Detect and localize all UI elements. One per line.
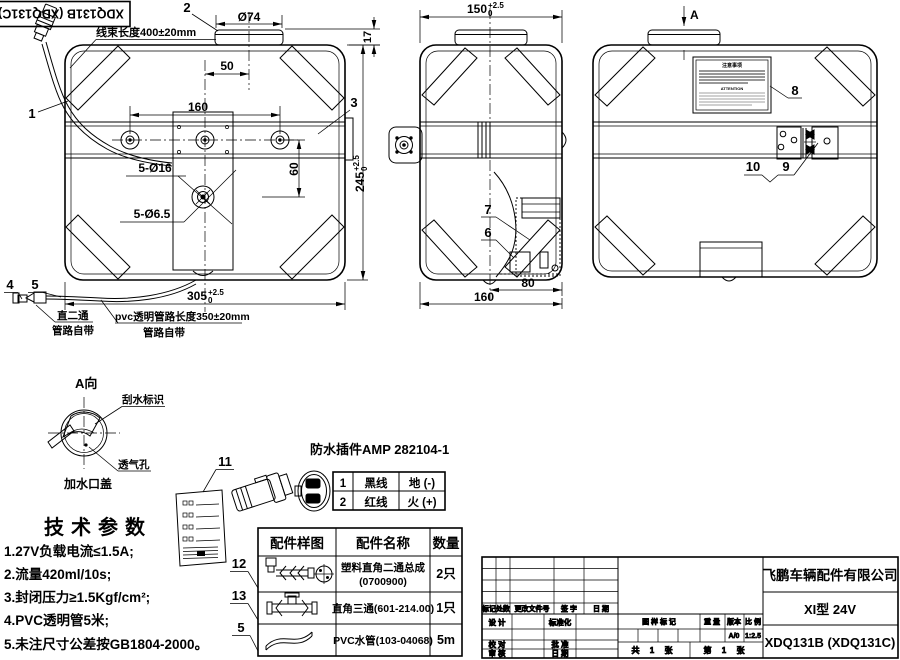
rear-corner-gussets bbox=[595, 47, 875, 275]
company-area: 飞鹏车辆配件有限公司 XI型 24V XDQ131B (XDQ131C) bbox=[763, 567, 899, 650]
roles-table: 设 计 标准化 校 对 批 准 审 核 日 期 bbox=[482, 614, 618, 658]
dim-text-hole-span: 160 bbox=[188, 100, 208, 114]
amp-connector-face: 1 2 bbox=[295, 471, 330, 511]
wire-row-no: 2 bbox=[340, 497, 346, 509]
wire-row-color: 黑线 bbox=[365, 476, 388, 490]
bottom-hose bbox=[46, 280, 196, 302]
product-tag bbox=[176, 490, 226, 566]
role-check: 校 对 bbox=[488, 639, 506, 649]
revision-table: 标记 处数 更改文件号 签 字 日 期 bbox=[481, 557, 618, 614]
filler-cap-label: 加水口盖 bbox=[63, 476, 112, 491]
tech-param-item: 4.PVC透明管5米; bbox=[4, 612, 109, 628]
side-corner-gussets bbox=[422, 48, 560, 277]
tech-params-title: 技术参数 bbox=[44, 515, 152, 539]
elbow-note-line1: 直二通 bbox=[57, 309, 89, 322]
rev-header-sign: 签 字 bbox=[560, 604, 577, 613]
rev-header-count: 处数 bbox=[495, 604, 511, 613]
dim-cap-offset: 50 bbox=[205, 59, 249, 74]
title-block: 标记 处数 更改文件号 签 字 日 期 设 计 标准化 校 对 批 准 审 核 … bbox=[481, 557, 898, 658]
wiper-mark-note: 刮水标识 bbox=[95, 393, 165, 424]
pvc-note-line2: 管路自带 bbox=[143, 326, 185, 339]
warning-label-attention: ATTENTION bbox=[721, 86, 744, 91]
tech-param-item: 5.未注尺寸公差按GB1804-2000。 bbox=[4, 636, 208, 652]
connector-title: 防水插件AMP 282104-1 bbox=[310, 442, 449, 457]
dim-text-cap-dia: Ø74 bbox=[238, 10, 261, 24]
callout-5b: 5 bbox=[232, 620, 258, 651]
callout-5b-text: 5 bbox=[237, 620, 244, 635]
dim-cap-dia: Ø74 bbox=[216, 10, 282, 28]
role-date: 日 期 bbox=[551, 648, 569, 658]
harness-note: 线束长度400±20mm bbox=[70, 25, 216, 68]
part-qty: 1只 bbox=[436, 601, 456, 615]
view-a-arrow: A bbox=[684, 6, 699, 26]
stamp-mark-label: 图 样 标 记 bbox=[642, 617, 676, 626]
warning-label-textlines-en bbox=[699, 93, 765, 105]
dim-text-height: 245 bbox=[353, 172, 367, 192]
front-view: Ø74 50 160 60 5-Ø16 5 bbox=[4, 0, 380, 339]
pvc-note: pvc透明管路长度350±20mm 管路自带 bbox=[101, 300, 250, 339]
sheet-page: 第 1 张 bbox=[704, 645, 749, 655]
part-qty: 2只 bbox=[436, 567, 456, 581]
dim-text-width: 305 bbox=[187, 289, 207, 303]
side-pump bbox=[483, 172, 560, 284]
engineering-drawing-sheet: XDQ131B (XDQ131C) bbox=[0, 0, 900, 660]
role-approve: 批 准 bbox=[551, 639, 569, 649]
callout-9-text: 9 bbox=[782, 159, 789, 174]
stamp-version-label: 版本 bbox=[727, 617, 741, 626]
scale-value: 1:2.5 bbox=[745, 633, 761, 640]
callout-1-text: 1 bbox=[28, 106, 35, 121]
corner-label: XDQ131B (XDQ131C) bbox=[0, 2, 130, 27]
callout-4-text: 4 bbox=[6, 277, 14, 292]
warning-label: 注意事项 ATTENTION bbox=[693, 57, 771, 113]
callout-10-text: 10 bbox=[746, 159, 760, 174]
tech-param-item: 1.27V负载电流≤1.5A; bbox=[4, 543, 134, 559]
callout-11: 11 bbox=[203, 454, 234, 492]
tech-params: 技术参数 1.27V负载电流≤1.5A; 2.流量420ml/10s; 3.封闭… bbox=[4, 515, 208, 652]
dim-text-pump: 80 bbox=[521, 276, 535, 290]
wiper-mark-text: 刮水标识 bbox=[122, 393, 164, 406]
pin-1-number: 1 bbox=[311, 482, 315, 489]
callout-10: 10 bbox=[744, 159, 762, 175]
model-designation: XI型 24V bbox=[804, 602, 856, 617]
part-sketch-tee bbox=[267, 593, 317, 616]
vent-hole-text: 透气孔 bbox=[118, 458, 150, 471]
dim-text-holes-small: 5-Ø6.5 bbox=[134, 207, 171, 221]
part-qty: 5m bbox=[437, 633, 455, 647]
part-sketch-hose bbox=[266, 632, 312, 650]
part-name: 塑料直角二通总成 bbox=[341, 561, 425, 574]
callout-5-text: 5 bbox=[31, 277, 38, 292]
stamp-weight-label: 重 量 bbox=[704, 617, 720, 626]
rev-header-doc: 更改文件号 bbox=[515, 604, 550, 613]
role-review: 审 核 bbox=[488, 648, 506, 658]
view-a-title: A向 bbox=[75, 376, 97, 391]
pvc-note-line1: pvc透明管路长度350±20mm bbox=[115, 310, 250, 323]
dim-depth-top: 150 +2.5 0 bbox=[420, 1, 562, 43]
callout-8: 8 bbox=[770, 83, 802, 98]
dim-text-depth-bottom: 160 bbox=[474, 290, 494, 304]
parts-col-qty: 数量 bbox=[433, 535, 460, 551]
dim-text-hole-drop: 60 bbox=[287, 162, 301, 176]
stamp-scale-label: 比 例 bbox=[745, 617, 761, 626]
tech-param-item: 3.封闭压力≥1.5Kgf/cm²; bbox=[4, 589, 150, 605]
corner-code-text: XDQ131B (XDQ131C) bbox=[0, 7, 124, 21]
callout-6: 6 bbox=[481, 225, 514, 258]
callout-12: 12 bbox=[230, 556, 258, 588]
dim-text-width-tol-dn: 0 bbox=[208, 296, 213, 305]
dim-text-height-tol-dn: 0 bbox=[360, 166, 369, 171]
version-value: A/0 bbox=[729, 633, 740, 640]
callout-2-text: 2 bbox=[183, 0, 190, 15]
pin-2-number: 2 bbox=[311, 497, 315, 504]
wire-row-no: 1 bbox=[340, 478, 347, 490]
warning-label-textlines bbox=[699, 71, 765, 83]
elbow-note-line2: 管路自带 bbox=[52, 324, 94, 337]
dim-text-holes-large: 5-Ø16 bbox=[138, 161, 172, 175]
drawing-canvas: XDQ131B (XDQ131C) bbox=[0, 0, 900, 660]
part-sketch-elbow bbox=[266, 558, 334, 584]
elbow-fitting bbox=[13, 292, 46, 303]
callout-11-text: 11 bbox=[218, 454, 232, 469]
sheet-total: 共 1 张 bbox=[632, 645, 677, 655]
wire-row-polarity: 地 (-) bbox=[409, 476, 435, 490]
amp-connector-body bbox=[230, 469, 294, 515]
side-filler-cap bbox=[455, 30, 527, 45]
role-standard: 标准化 bbox=[548, 617, 572, 627]
side-bracket bbox=[389, 127, 422, 163]
tech-param-item: 2.流量420ml/10s; bbox=[4, 566, 111, 582]
company-name: 飞鹏车辆配件有限公司 bbox=[763, 567, 898, 583]
harness-wire bbox=[42, 42, 172, 166]
view-a-arrow-label: A bbox=[690, 8, 699, 22]
dim-width: 305 +2.5 0 bbox=[65, 282, 345, 310]
callout-12-text: 12 bbox=[232, 556, 246, 571]
dim-text-cap-height: 17 bbox=[362, 31, 374, 43]
rev-header-date: 日 期 bbox=[593, 604, 609, 613]
side-view: 7 6 150 +2.5 0 80 160 bbox=[389, 1, 566, 309]
callout-6-text: 6 bbox=[484, 225, 491, 240]
side-band bbox=[420, 122, 566, 158]
parts-col-name: 配件名称 bbox=[356, 535, 410, 551]
dim-text-depth-top: 150 bbox=[467, 2, 487, 16]
callout-7-text: 7 bbox=[484, 202, 491, 217]
part-name: 直角三通(601-214.00) bbox=[332, 602, 434, 615]
callout-3: 3 bbox=[318, 95, 358, 134]
dim-depth-bottom: 160 bbox=[420, 282, 562, 309]
callout-8-text: 8 bbox=[791, 83, 798, 98]
parts-table: 配件样图 配件名称 数量 塑料直角二通总成 (0700900) 2只 直角三通(… bbox=[230, 528, 462, 656]
rear-bottom-bracket bbox=[700, 242, 762, 281]
wiper-symbol bbox=[48, 412, 100, 448]
dim-text-cap-offset: 50 bbox=[220, 59, 234, 73]
wire-row-polarity: 火 (+) bbox=[407, 496, 436, 509]
callout-13: 13 bbox=[230, 588, 258, 620]
drawing-number: XDQ131B (XDQ131C) bbox=[765, 635, 896, 650]
wire-row-color: 红线 bbox=[365, 495, 388, 509]
dim-holes-small: 5-Ø6.5 bbox=[120, 170, 236, 222]
role-design: 设 计 bbox=[488, 617, 506, 627]
part-name: PVC水管(103-04068) bbox=[333, 634, 433, 647]
callout-3-text: 3 bbox=[350, 95, 357, 110]
rear-filler-cap bbox=[648, 30, 720, 45]
warning-label-title: 注意事项 bbox=[722, 62, 742, 69]
stamp-area: 图 样 标 记 重 量 版本 比 例 A/0 1:2.5 共 1 张 第 1 张 bbox=[618, 614, 763, 658]
harness-note-text: 线束长度400±20mm bbox=[96, 25, 196, 39]
part-name-sub: (0700900) bbox=[359, 576, 407, 588]
parts-col-sample: 配件样图 bbox=[270, 535, 324, 551]
dim-text-depth-tol-dn: 0 bbox=[488, 9, 493, 18]
dim-height: 245 +2.5 0 bbox=[347, 45, 380, 280]
view-a: A向 刮水标识 透气孔 加水口盖 bbox=[48, 376, 165, 491]
rear-view: A 注意事项 ATTENTION 8 bbox=[593, 6, 877, 281]
callout-13-text: 13 bbox=[232, 588, 246, 603]
wiring-table: 1 黑线 地 (-) 2 红线 火 (+) bbox=[333, 472, 445, 510]
rev-header-mark: 标记 bbox=[481, 604, 496, 613]
elbow-note: 直二通 管路自带 bbox=[36, 305, 94, 337]
